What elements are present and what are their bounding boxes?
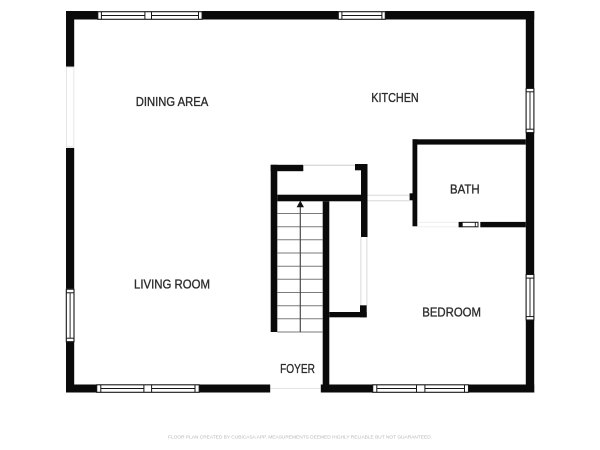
svg-text:FOYER: FOYER	[280, 361, 315, 376]
svg-text:FLOOR PLAN CREATED BY CUBICASA: FLOOR PLAN CREATED BY CUBICASA APP. MEAS…	[168, 434, 432, 439]
svg-text:DINING AREA: DINING AREA	[136, 94, 209, 109]
svg-text:KITCHEN: KITCHEN	[371, 90, 419, 105]
svg-text:LIVING ROOM: LIVING ROOM	[134, 277, 210, 292]
svg-text:BEDROOM: BEDROOM	[422, 305, 481, 320]
svg-text:BATH: BATH	[450, 182, 480, 197]
